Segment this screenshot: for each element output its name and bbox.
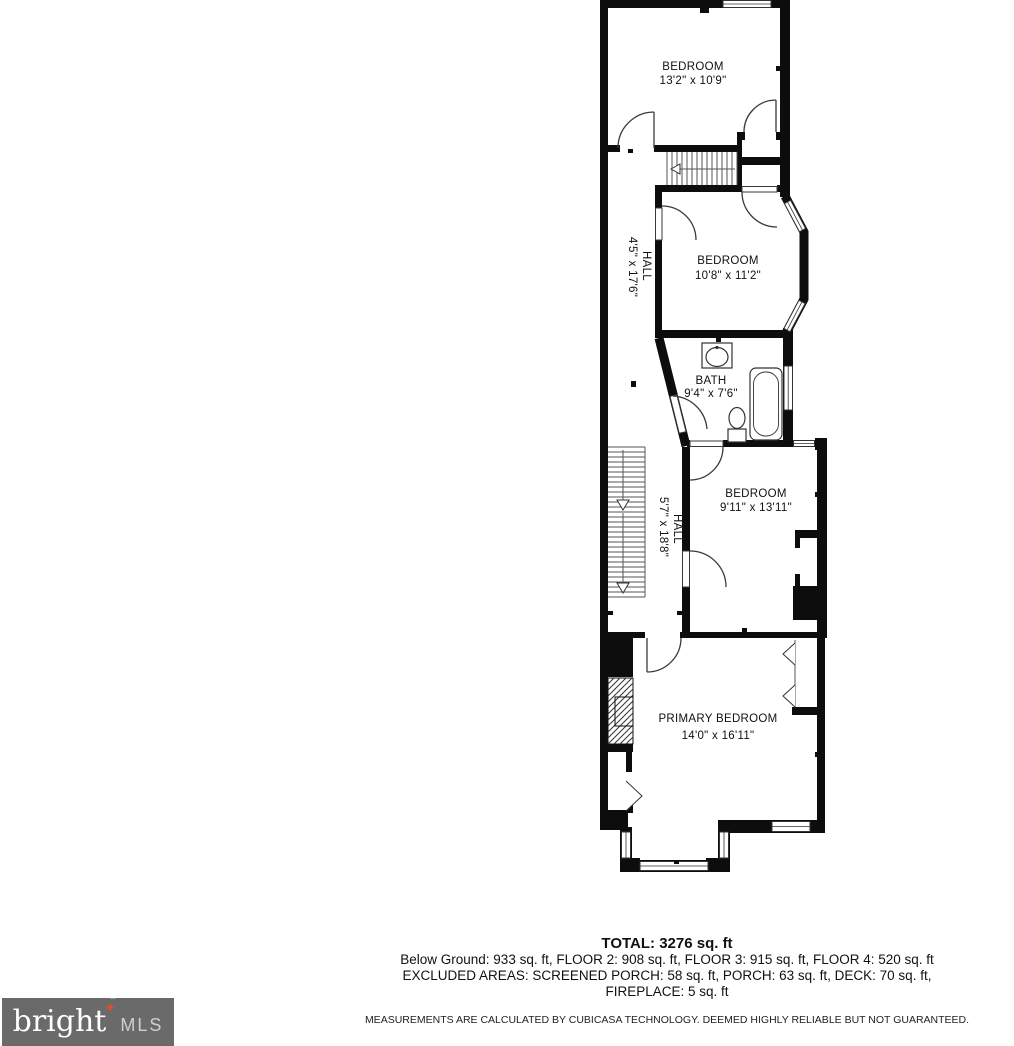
hall-upper-dims: 4'5" x 17'6": [626, 237, 638, 297]
excluded-areas: EXCLUDED AREAS: SCREENED PORCH: 58 sq. f…: [360, 968, 974, 984]
page: { "plan": { "rooms": [ {"id": "bedroom-1…: [0, 0, 1014, 1046]
bathtub: [750, 368, 782, 440]
bay-window-upper: [784, 200, 805, 232]
closet-bifold-doors: [783, 640, 795, 707]
primary-bedroom-dims: 14'0" x 16'11": [682, 730, 755, 742]
window-top: [723, 1, 771, 8]
stairs-lower: [608, 447, 645, 597]
floor-areas: Below Ground: 933 sq. ft, FLOOR 2: 908 s…: [360, 952, 974, 968]
area-summary: TOTAL: 3276 sq. ft Below Ground: 933 sq.…: [360, 935, 974, 1001]
hall-lower-dims: 5'7" x 18'8": [657, 497, 669, 557]
bedroom3-window: [794, 441, 815, 447]
bedroom2-door-left: [656, 206, 697, 240]
sink: [702, 343, 732, 368]
stairs-upper: [667, 152, 737, 185]
hall-lower-label: HALL: [671, 514, 683, 544]
bath-door: [670, 395, 686, 434]
logo-trademark: ™: [109, 996, 116, 1004]
bath-label: BATH: [695, 375, 726, 387]
bumpout-window-right: [720, 832, 729, 858]
toilet: [728, 408, 746, 443]
bay-window-lower: [784, 300, 805, 332]
primary-door: [647, 638, 681, 672]
alcove-door: [626, 781, 642, 811]
bedroom3-door-left: [683, 551, 727, 587]
fireplace: [608, 678, 633, 744]
bath-window: [784, 366, 793, 410]
bedroom3-label: BEDROOM: [725, 488, 787, 500]
bedroom2-dims: 10'8" x 11'2": [695, 270, 761, 282]
total-area: TOTAL: 3276 sq. ft: [360, 935, 974, 952]
logo-brand-text: bright: [13, 1004, 107, 1039]
primary-bedroom-label: PRIMARY BEDROOM: [658, 713, 777, 725]
hall-upper-label: HALL: [640, 251, 652, 281]
excluded-areas-cont: FIREPLACE: 5 sq. ft: [360, 984, 974, 1000]
bedroom1-door-left: [618, 112, 654, 148]
bath-dims: 9'4" x 7'6": [684, 388, 738, 400]
bedroom1-label: BEDROOM: [662, 61, 724, 73]
bedroom3-dims: 9'11" x 13'11": [720, 502, 792, 514]
primary-window-bottom: [772, 822, 810, 832]
bumpout-window-left: [622, 832, 631, 858]
bedroom1-dims: 13'2" x 10'9": [660, 75, 727, 87]
floor-plan-svg: BEDROOM 13'2" x 10'9" HALL 4'5" x 17'6" …: [0, 0, 1014, 1046]
bedroom2-label: BEDROOM: [697, 255, 759, 267]
bedroom2-door-top: [742, 187, 777, 228]
stairs-down-arrow-1: [617, 500, 629, 510]
logo-mls-text: MLS: [120, 1015, 163, 1036]
bedroom3-door-top: [690, 441, 723, 480]
disclaimer-text: MEASUREMENTS ARE CALCULATED BY CUBICASA …: [360, 1014, 974, 1026]
bedroom1-door-right: [744, 100, 776, 132]
bright-mls-logo: bright✦™ MLS: [2, 998, 174, 1046]
